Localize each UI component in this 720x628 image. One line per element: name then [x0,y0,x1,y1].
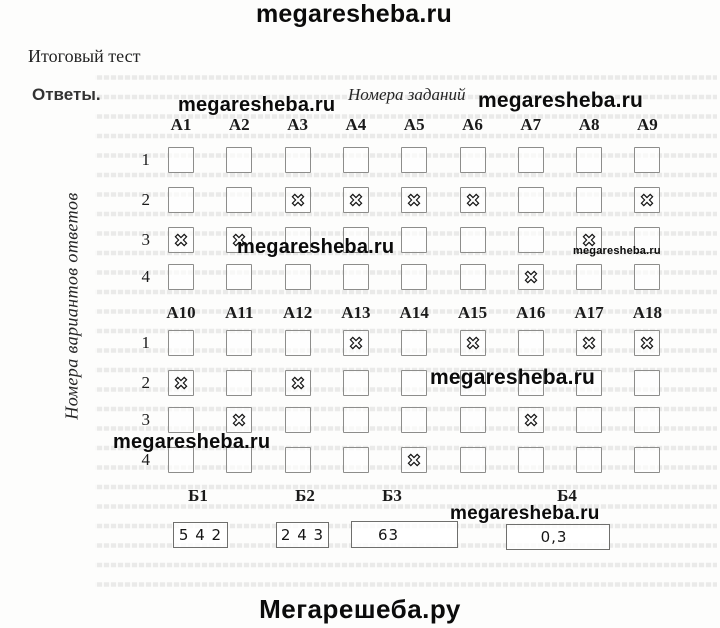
checkbox-А16-option-4[interactable] [518,447,544,473]
checkbox-А10-option-3[interactable] [168,407,194,433]
answer-value-b3: 63 [378,526,399,544]
checkbox-А2-option-1[interactable] [226,147,252,173]
column-header-А18: А18 [633,303,662,323]
watermark-header-right: megaresheba.ru [478,89,643,113]
checkbox-А14-option-1[interactable] [401,330,427,356]
scanned-answer-sheet: megaresheba.ru Итоговый тест Ответы. meg… [0,0,720,628]
checkbox-А14-option-3[interactable] [401,407,427,433]
answers-heading: Ответы. [32,85,101,105]
column-header-А17: А17 [574,303,603,323]
checkbox-А7-option-1[interactable] [518,147,544,173]
checkbox-А6-option-2[interactable] [460,187,486,213]
x-mark-icon [642,337,653,348]
checkbox-А3-option-1[interactable] [285,147,311,173]
watermark-part-b: megaresheba.ru [450,503,600,525]
columns-axis-label: Номера заданий [348,85,465,105]
answer-box-b3[interactable]: 63 [351,521,458,548]
watermark-grid2: megaresheba.ru [430,366,595,390]
checkbox-А1-option-1[interactable] [168,147,194,173]
answer-box-b2[interactable]: 2 4 3 [276,522,329,548]
x-mark-icon [467,337,478,348]
row-option-label-1-1: 1 [126,150,150,170]
watermark-grid2-left: megaresheba.ru [113,431,270,454]
checkbox-А18-option-4[interactable] [634,447,660,473]
column-header-А14: А14 [400,303,429,323]
row-option-label-1-2: 2 [126,190,150,210]
checkbox-А14-option-4[interactable] [401,447,427,473]
checkbox-А5-option-2[interactable] [401,187,427,213]
answer-value-b1: 5 4 2 [179,526,222,544]
checkbox-А12-option-4[interactable] [285,447,311,473]
x-mark-icon [175,234,186,245]
checkbox-А15-option-1[interactable] [460,330,486,356]
x-mark-icon [525,414,536,425]
x-mark-icon [467,194,478,205]
checkbox-А4-option-1[interactable] [343,147,369,173]
part-b-header-b3: Б3 [382,486,402,506]
checkbox-А7-option-4[interactable] [518,264,544,290]
scan-bleed-texture [95,62,717,594]
x-mark-icon [350,337,361,348]
checkbox-А10-option-1[interactable] [168,330,194,356]
checkbox-А13-option-2[interactable] [343,370,369,396]
checkbox-А8-option-2[interactable] [576,187,602,213]
checkbox-А1-option-4[interactable] [168,264,194,290]
x-mark-icon [175,377,186,388]
watermark-footer: Мегарешеба.ру [0,594,720,625]
column-header-А13: А13 [341,303,370,323]
x-mark-icon [234,414,245,425]
part-b-header-b1: Б1 [188,486,208,506]
checkbox-А14-option-2[interactable] [401,370,427,396]
answer-value-b4: 0,3 [541,528,568,546]
watermark-header-left: megaresheba.ru [178,94,335,117]
x-mark-icon [525,271,536,282]
x-mark-icon [409,194,420,205]
checkbox-А5-option-3[interactable] [401,227,427,253]
checkbox-А2-option-2[interactable] [226,187,252,213]
checkbox-А17-option-4[interactable] [576,447,602,473]
checkbox-А15-option-3[interactable] [460,407,486,433]
x-mark-icon [642,194,653,205]
checkbox-А10-option-2[interactable] [168,370,194,396]
checkbox-А6-option-1[interactable] [460,147,486,173]
x-mark-icon [292,194,303,205]
checkbox-А16-option-1[interactable] [518,330,544,356]
checkbox-А11-option-2[interactable] [226,370,252,396]
column-header-А1: А1 [171,115,192,135]
column-header-А6: А6 [462,115,483,135]
checkbox-А3-option-2[interactable] [285,187,311,213]
checkbox-А2-option-4[interactable] [226,264,252,290]
answer-value-b2: 2 4 3 [281,526,324,544]
x-mark-icon [583,234,594,245]
checkbox-А4-option-4[interactable] [343,264,369,290]
watermark-grid1-small: megaresheba.ru [573,245,661,257]
checkbox-А8-option-4[interactable] [576,264,602,290]
checkbox-А5-option-4[interactable] [401,264,427,290]
row-option-label-2-2: 2 [126,373,150,393]
answer-box-b4[interactable]: 0,3 [506,524,610,550]
row-option-label-1-4: 4 [126,267,150,287]
rows-axis-label: Номера вариантов ответов [62,192,83,419]
checkbox-А7-option-3[interactable] [518,227,544,253]
part-b-header-b4: Б4 [557,486,577,506]
checkbox-А6-option-4[interactable] [460,264,486,290]
column-header-А3: А3 [287,115,308,135]
checkbox-А13-option-1[interactable] [343,330,369,356]
checkbox-А4-option-2[interactable] [343,187,369,213]
watermark-top: megaresheba.ru [256,0,452,29]
column-header-А15: А15 [458,303,487,323]
column-header-А10: А10 [166,303,195,323]
row-option-label-2-1: 1 [126,333,150,353]
checkbox-А7-option-2[interactable] [518,187,544,213]
checkbox-А17-option-1[interactable] [576,330,602,356]
x-mark-icon [409,454,420,465]
checkbox-А3-option-4[interactable] [285,264,311,290]
page-title: Итоговый тест [28,46,140,67]
checkbox-А1-option-3[interactable] [168,227,194,253]
checkbox-А18-option-1[interactable] [634,330,660,356]
checkbox-А16-option-3[interactable] [518,407,544,433]
answer-box-b1[interactable]: 5 4 2 [173,522,228,548]
checkbox-А15-option-4[interactable] [460,447,486,473]
checkbox-А18-option-3[interactable] [634,407,660,433]
column-header-А7: А7 [520,115,541,135]
column-header-А4: А4 [346,115,367,135]
checkbox-А17-option-3[interactable] [576,407,602,433]
checkbox-А8-option-1[interactable] [576,147,602,173]
checkbox-А6-option-3[interactable] [460,227,486,253]
column-header-А8: А8 [579,115,600,135]
checkbox-А13-option-3[interactable] [343,407,369,433]
checkbox-А12-option-3[interactable] [285,407,311,433]
x-mark-icon [583,337,594,348]
part-b-header-b2: Б2 [295,486,315,506]
column-header-А11: А11 [225,303,253,323]
watermark-grid1: megaresheba.ru [237,236,394,259]
checkbox-А12-option-1[interactable] [285,330,311,356]
checkbox-А18-option-2[interactable] [634,370,660,396]
checkbox-А11-option-1[interactable] [226,330,252,356]
checkbox-А9-option-2[interactable] [634,187,660,213]
x-mark-icon [292,377,303,388]
row-option-label-2-3: 3 [126,410,150,430]
checkbox-А11-option-3[interactable] [226,407,252,433]
column-header-А5: А5 [404,115,425,135]
checkbox-А9-option-4[interactable] [634,264,660,290]
checkbox-А12-option-2[interactable] [285,370,311,396]
checkbox-А9-option-1[interactable] [634,147,660,173]
checkbox-А13-option-4[interactable] [343,447,369,473]
x-mark-icon [350,194,361,205]
column-header-А12: А12 [283,303,312,323]
checkbox-А5-option-1[interactable] [401,147,427,173]
row-option-label-1-3: 3 [126,230,150,250]
column-header-А2: А2 [229,115,250,135]
checkbox-А1-option-2[interactable] [168,187,194,213]
column-header-А16: А16 [516,303,545,323]
column-header-А9: А9 [637,115,658,135]
